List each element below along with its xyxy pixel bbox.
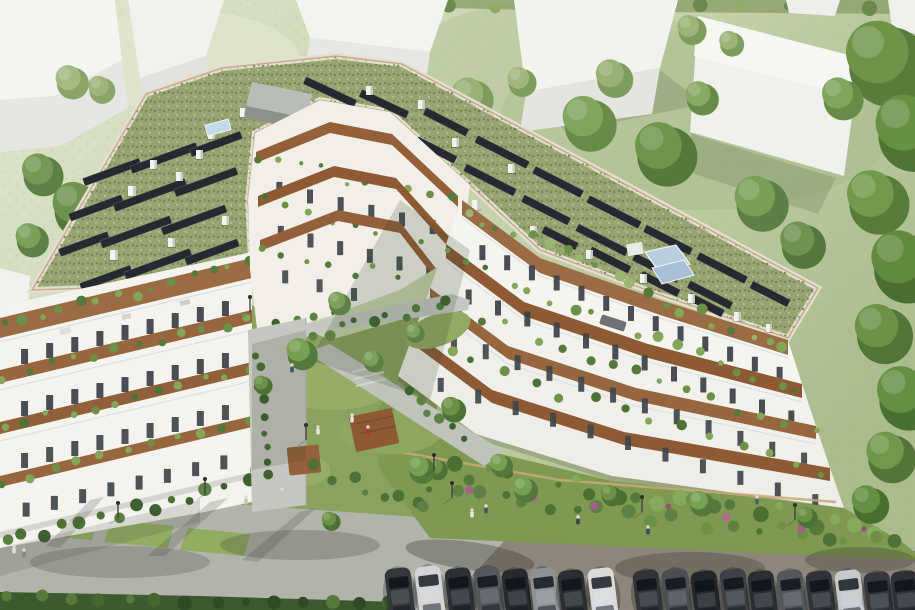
- 8: [136, 476, 143, 490]
- roof-vent: [109, 250, 119, 261]
- car-part: [594, 589, 614, 605]
- 13: [529, 265, 535, 280]
- tree-canopy: [691, 492, 701, 502]
- car-part: [897, 592, 915, 608]
- roof-vent-part: [693, 294, 695, 303]
- plant: [349, 471, 361, 483]
- plant: [36, 589, 48, 601]
- 12: [642, 398, 648, 413]
- plant: [174, 381, 183, 390]
- plant: [147, 593, 161, 607]
- plant: [574, 506, 582, 514]
- 9: [71, 389, 78, 404]
- roof-vent-part: [173, 238, 175, 247]
- person-part: [290, 367, 294, 373]
- plant: [262, 193, 268, 199]
- plant: [71, 456, 80, 465]
- plant: [15, 528, 26, 539]
- plant: [724, 499, 735, 510]
- tree-canopy: [492, 455, 501, 464]
- plant: [464, 474, 475, 485]
- plant: [757, 412, 765, 420]
- tree-canopy: [255, 377, 262, 384]
- car-part: [668, 590, 688, 606]
- tree-canopy: [509, 69, 520, 80]
- lamp-part: [304, 423, 308, 427]
- plant: [490, 2, 501, 13]
- plant: [299, 161, 303, 165]
- plant: [479, 222, 484, 227]
- person-part: [366, 429, 370, 435]
- plant: [109, 343, 119, 353]
- 13: [479, 245, 485, 260]
- car-part: [870, 593, 890, 609]
- plant: [791, 388, 796, 393]
- person: [316, 425, 320, 434]
- tree-canopy: [881, 99, 910, 128]
- person: [350, 413, 354, 422]
- plant: [1, 591, 12, 602]
- person-part: [646, 525, 649, 528]
- plant: [275, 157, 281, 163]
- plant: [683, 385, 691, 393]
- car-part: [508, 590, 528, 606]
- person-part: [484, 504, 487, 507]
- plant: [793, 462, 799, 468]
- roof-vent: [765, 324, 773, 333]
- person-part: [12, 544, 15, 547]
- plant: [326, 595, 340, 609]
- plant: [776, 342, 787, 353]
- roof-vent-part: [115, 250, 118, 260]
- 12: [554, 323, 560, 338]
- roof-vent-part: [645, 274, 647, 283]
- plant: [196, 429, 206, 439]
- plant: [847, 518, 862, 533]
- lamp-part: [203, 477, 207, 481]
- 9: [21, 401, 28, 416]
- 12: [578, 377, 584, 392]
- person-part: [366, 425, 369, 428]
- person-part: [350, 413, 353, 416]
- tree-canopy: [365, 352, 373, 360]
- roof-vent: [149, 160, 158, 170]
- plant: [71, 354, 77, 360]
- person-part: [22, 552, 26, 558]
- 9: [96, 383, 103, 398]
- car-part: [841, 591, 861, 607]
- plant: [380, 493, 389, 502]
- plant: [615, 271, 626, 282]
- 13: [554, 276, 560, 291]
- plant: [558, 345, 566, 353]
- tree-canopy: [739, 179, 760, 200]
- plant: [19, 418, 29, 428]
- car-part: [639, 591, 659, 607]
- tree-canopy: [330, 293, 339, 302]
- 8: [107, 482, 114, 496]
- person-part: [470, 512, 474, 518]
- plant: [635, 332, 642, 339]
- 6: [308, 234, 314, 248]
- plant: [663, 302, 670, 309]
- plant: [814, 428, 819, 433]
- tree-canopy: [721, 32, 731, 42]
- person: [22, 548, 26, 557]
- 8: [79, 489, 86, 503]
- car-part: [451, 589, 471, 605]
- plant: [282, 202, 289, 209]
- plant: [502, 318, 508, 324]
- person-part: [576, 515, 579, 518]
- plant: [701, 523, 713, 535]
- 9: [147, 319, 154, 334]
- plant: [555, 482, 561, 488]
- plant: [133, 292, 143, 302]
- plant: [718, 360, 724, 366]
- plant: [40, 314, 46, 320]
- person-part: [244, 499, 248, 505]
- 11: [700, 459, 706, 473]
- plant: [862, 1, 877, 16]
- plant: [76, 296, 86, 306]
- plant: [327, 476, 336, 485]
- 9: [96, 435, 103, 450]
- 11: [550, 413, 556, 427]
- lamp-part: [248, 295, 252, 299]
- plant: [49, 357, 56, 364]
- lamp-part: [450, 481, 454, 485]
- plant: [2, 424, 9, 431]
- car-part: [480, 588, 500, 604]
- aerial-rendering: [0, 0, 915, 610]
- plant: [345, 182, 349, 186]
- 12: [524, 312, 530, 327]
- person: [646, 525, 650, 534]
- plant: [780, 420, 788, 428]
- plant: [870, 531, 882, 543]
- roof-vent: [733, 312, 742, 322]
- car-part: [783, 591, 803, 607]
- plant: [753, 506, 769, 522]
- plant: [609, 360, 618, 369]
- plant: [224, 264, 229, 269]
- roof-vent-part: [591, 250, 593, 259]
- plant: [25, 474, 34, 483]
- roof-vent-part: [739, 312, 741, 321]
- 9: [71, 441, 78, 456]
- tree-canopy: [799, 508, 807, 516]
- 11: [438, 378, 444, 392]
- plant: [203, 374, 209, 380]
- plant: [706, 433, 713, 440]
- plant: [707, 392, 715, 400]
- plant: [449, 423, 456, 430]
- plant: [502, 491, 510, 499]
- 12: [642, 356, 648, 371]
- plant: [722, 513, 731, 522]
- plant: [677, 420, 687, 430]
- 9: [172, 365, 179, 380]
- person-part: [22, 548, 25, 551]
- roof-vent-part: [770, 324, 772, 332]
- plant: [17, 314, 28, 325]
- plant: [529, 230, 538, 239]
- 13: [578, 286, 584, 301]
- tree-canopy: [25, 156, 41, 172]
- tree-canopy: [855, 488, 869, 502]
- plant: [649, 496, 664, 511]
- plant: [583, 488, 595, 500]
- 9: [147, 423, 154, 438]
- tree-canopy: [859, 308, 881, 330]
- 5: [282, 270, 288, 283]
- person: [470, 508, 474, 517]
- tree-canopy: [870, 435, 889, 454]
- 9: [222, 405, 229, 420]
- plant: [2, 319, 9, 326]
- 9: [147, 371, 154, 386]
- plant: [92, 406, 100, 414]
- plant: [631, 364, 641, 374]
- plant: [147, 439, 155, 447]
- plant: [500, 366, 510, 376]
- plant: [137, 341, 143, 347]
- plant: [861, 526, 866, 531]
- plant: [752, 335, 757, 340]
- plant: [592, 262, 598, 268]
- plant: [447, 456, 463, 472]
- plant: [434, 413, 444, 423]
- plant: [325, 330, 336, 341]
- roof-vent: [175, 172, 184, 182]
- plant: [478, 318, 486, 326]
- person-part: [316, 425, 319, 428]
- 9: [222, 301, 229, 316]
- plant: [571, 305, 582, 316]
- 9: [122, 325, 129, 340]
- tree-shadow: [220, 530, 380, 560]
- 5: [317, 279, 323, 292]
- 9: [21, 349, 28, 364]
- roof-vent-part: [181, 172, 183, 181]
- 9: [96, 331, 103, 346]
- lamp-part: [432, 453, 436, 457]
- 12: [612, 345, 618, 360]
- plant: [339, 321, 345, 327]
- plant: [554, 394, 563, 403]
- car-part: [812, 592, 832, 608]
- plant: [545, 238, 556, 249]
- plant: [416, 396, 426, 406]
- tree-canopy: [289, 340, 301, 352]
- plant: [448, 192, 457, 201]
- roof-vent: [127, 186, 137, 197]
- plant: [217, 424, 226, 433]
- roof-vent: [687, 294, 696, 304]
- plant: [779, 382, 787, 390]
- roof-vent: [507, 164, 516, 174]
- roof-vent-part: [477, 200, 480, 210]
- 8: [192, 462, 199, 476]
- plant: [130, 499, 143, 512]
- 9: [71, 337, 78, 352]
- 9: [197, 307, 204, 322]
- person-part: [470, 508, 473, 511]
- tree-canopy: [58, 67, 71, 80]
- plant: [482, 265, 488, 271]
- 8: [23, 503, 30, 517]
- 11: [513, 401, 519, 415]
- plant: [674, 308, 684, 318]
- plant: [213, 597, 225, 609]
- person-part: [290, 363, 293, 366]
- plant: [43, 410, 48, 415]
- plant: [177, 328, 186, 337]
- car-part: [421, 587, 441, 603]
- car-part: [536, 589, 556, 605]
- person: [755, 495, 759, 504]
- 11: [662, 448, 668, 462]
- plant: [734, 409, 741, 416]
- plant: [197, 326, 204, 333]
- plant: [467, 356, 474, 363]
- roof-vent: [585, 250, 594, 260]
- car-part: [391, 589, 411, 605]
- plant: [325, 261, 332, 268]
- tree-canopy: [567, 99, 588, 120]
- plant: [587, 356, 596, 365]
- plant: [465, 486, 473, 494]
- plant: [727, 327, 735, 335]
- 13: [653, 316, 659, 331]
- plant: [666, 504, 672, 510]
- plant: [353, 597, 366, 610]
- plant: [572, 475, 580, 483]
- plant: [210, 266, 218, 274]
- 9: [46, 447, 53, 462]
- plant: [263, 470, 273, 480]
- 9: [21, 453, 28, 468]
- 9: [122, 429, 129, 444]
- 9: [122, 377, 129, 392]
- person: [484, 504, 488, 513]
- plant: [26, 368, 33, 375]
- roof-vent-part: [227, 216, 229, 225]
- plant: [192, 270, 199, 277]
- 6: [307, 190, 313, 204]
- 11: [737, 471, 743, 485]
- plant: [423, 410, 430, 417]
- plant: [310, 313, 318, 321]
- 12: [483, 344, 489, 359]
- plant: [728, 521, 739, 532]
- plant: [590, 502, 598, 510]
- tree-canopy: [640, 126, 664, 150]
- plant: [71, 411, 78, 418]
- 8: [220, 455, 227, 469]
- plant: [3, 534, 14, 545]
- plant: [510, 232, 516, 238]
- tree-canopy: [407, 325, 414, 332]
- 13: [727, 347, 733, 362]
- 12: [700, 378, 706, 393]
- plant: [461, 436, 467, 442]
- plant: [426, 486, 432, 492]
- tree-canopy: [57, 185, 78, 206]
- plant: [653, 331, 664, 342]
- tree-shadow: [30, 546, 210, 578]
- roof-vent: [417, 100, 426, 110]
- plant: [154, 386, 162, 394]
- tree-canopy: [603, 486, 611, 494]
- plant: [740, 442, 749, 451]
- plant: [221, 483, 228, 490]
- plant: [417, 501, 428, 512]
- plant: [373, 231, 378, 236]
- plant: [452, 485, 464, 497]
- plant: [564, 245, 573, 254]
- plant: [54, 305, 62, 313]
- plant: [766, 449, 774, 457]
- plant: [645, 418, 652, 425]
- plant: [95, 451, 104, 460]
- plant: [159, 339, 166, 346]
- plant: [221, 374, 227, 380]
- tree-shadow: [805, 547, 915, 573]
- person-part: [484, 508, 488, 514]
- 11: [475, 389, 481, 403]
- roof-vent: [167, 238, 176, 248]
- 11: [775, 483, 781, 497]
- person-part: [244, 495, 247, 498]
- plant: [148, 287, 153, 292]
- person-part: [755, 495, 758, 498]
- plant: [115, 290, 122, 297]
- person-part: [350, 417, 354, 423]
- plant: [309, 332, 318, 341]
- person-part: [316, 429, 320, 435]
- 9: [172, 417, 179, 432]
- plant: [175, 433, 181, 439]
- plant: [535, 338, 543, 346]
- person: [290, 363, 294, 372]
- plant: [319, 163, 324, 168]
- plant: [91, 593, 105, 607]
- plant: [369, 316, 380, 327]
- 11: [588, 424, 594, 438]
- person-part: [280, 491, 284, 497]
- plant: [92, 297, 99, 304]
- tree-canopy: [18, 225, 31, 238]
- tree-canopy: [688, 83, 701, 96]
- tree-canopy: [515, 478, 525, 488]
- plant: [672, 339, 683, 350]
- plant: [254, 156, 261, 163]
- tree-canopy: [882, 370, 906, 394]
- plant: [643, 287, 653, 297]
- 12: [759, 400, 765, 415]
- 8: [164, 469, 171, 483]
- roof-vent: [639, 274, 648, 284]
- 6: [338, 197, 344, 211]
- 12: [730, 389, 736, 404]
- 9: [172, 313, 179, 328]
- roof-vent-part: [155, 160, 157, 169]
- plant: [775, 502, 783, 510]
- person: [576, 515, 580, 524]
- plant: [278, 252, 284, 258]
